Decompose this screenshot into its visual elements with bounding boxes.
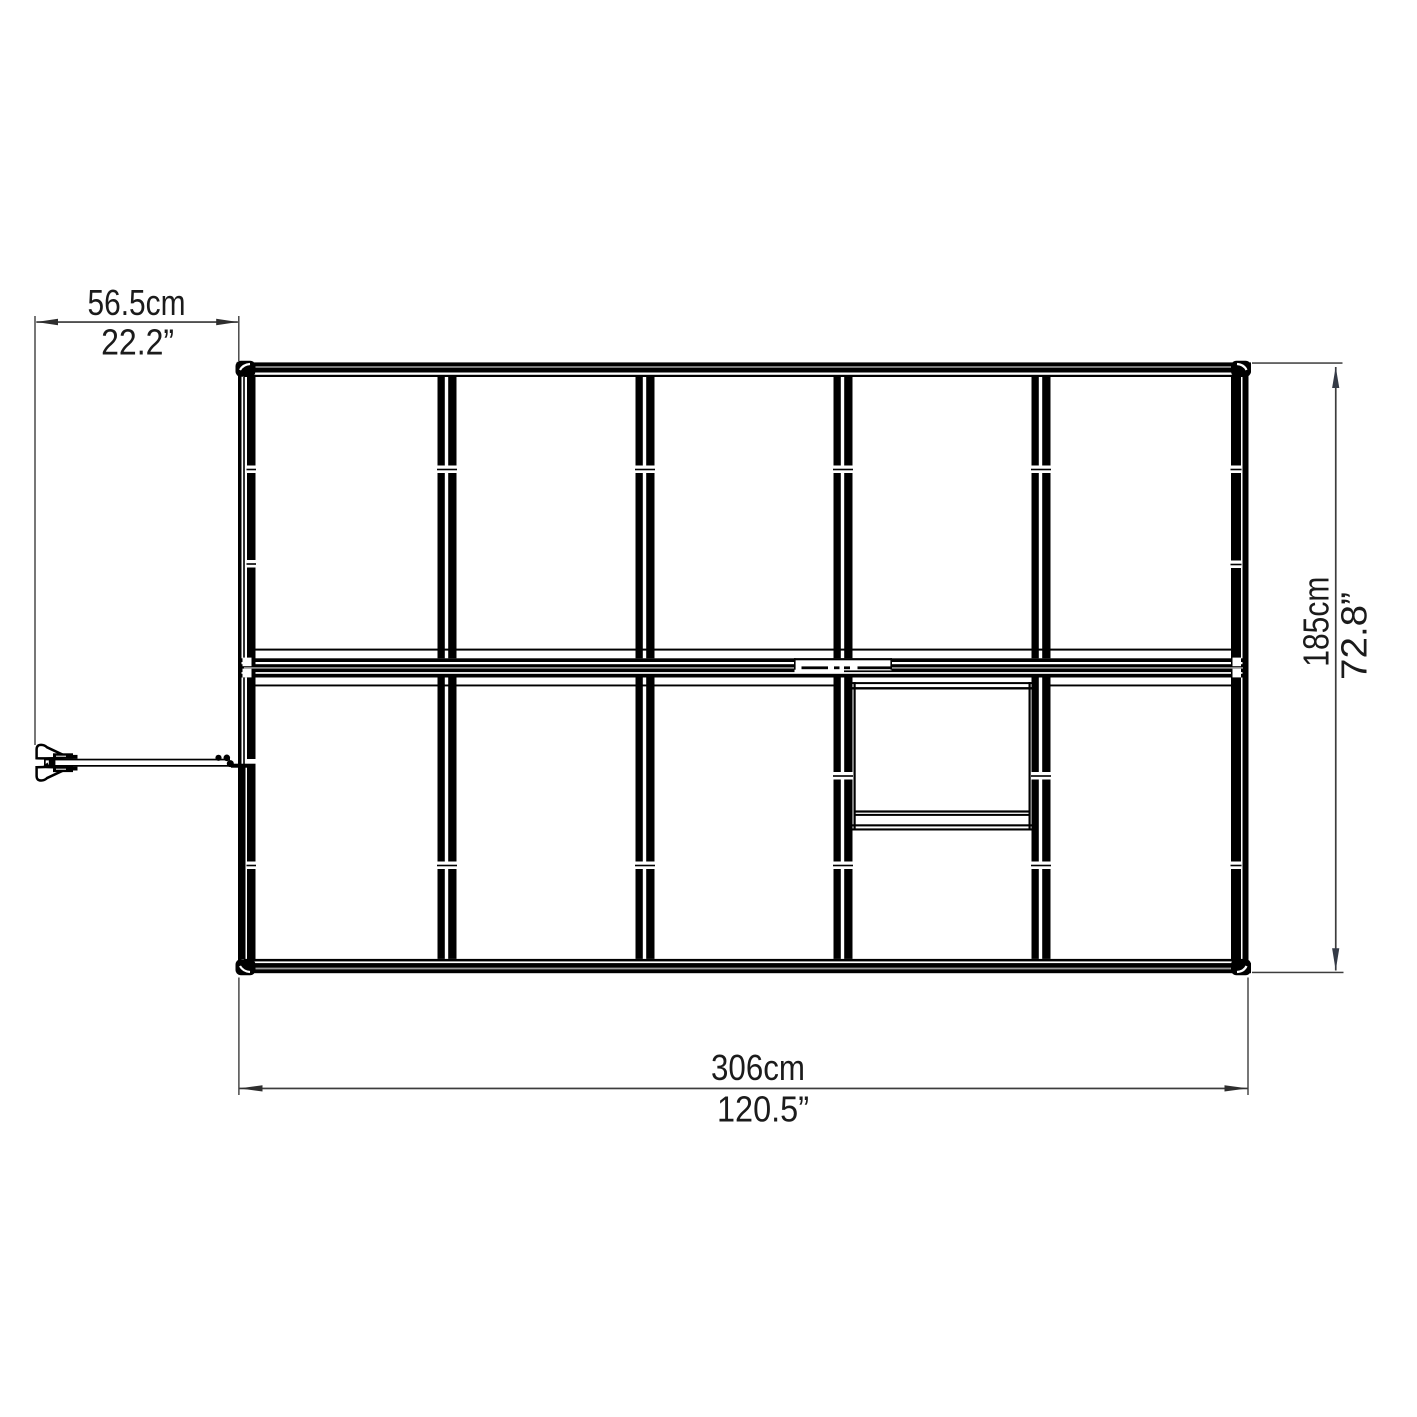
svg-text:72.8”: 72.8” bbox=[1334, 592, 1375, 680]
svg-text:306cm: 306cm bbox=[711, 1047, 805, 1088]
svg-text:120.5”: 120.5” bbox=[717, 1089, 809, 1130]
svg-text:22.2”: 22.2” bbox=[101, 322, 174, 363]
svg-text:185cm: 185cm bbox=[1296, 577, 1337, 667]
svg-text:56.5cm: 56.5cm bbox=[88, 282, 186, 323]
